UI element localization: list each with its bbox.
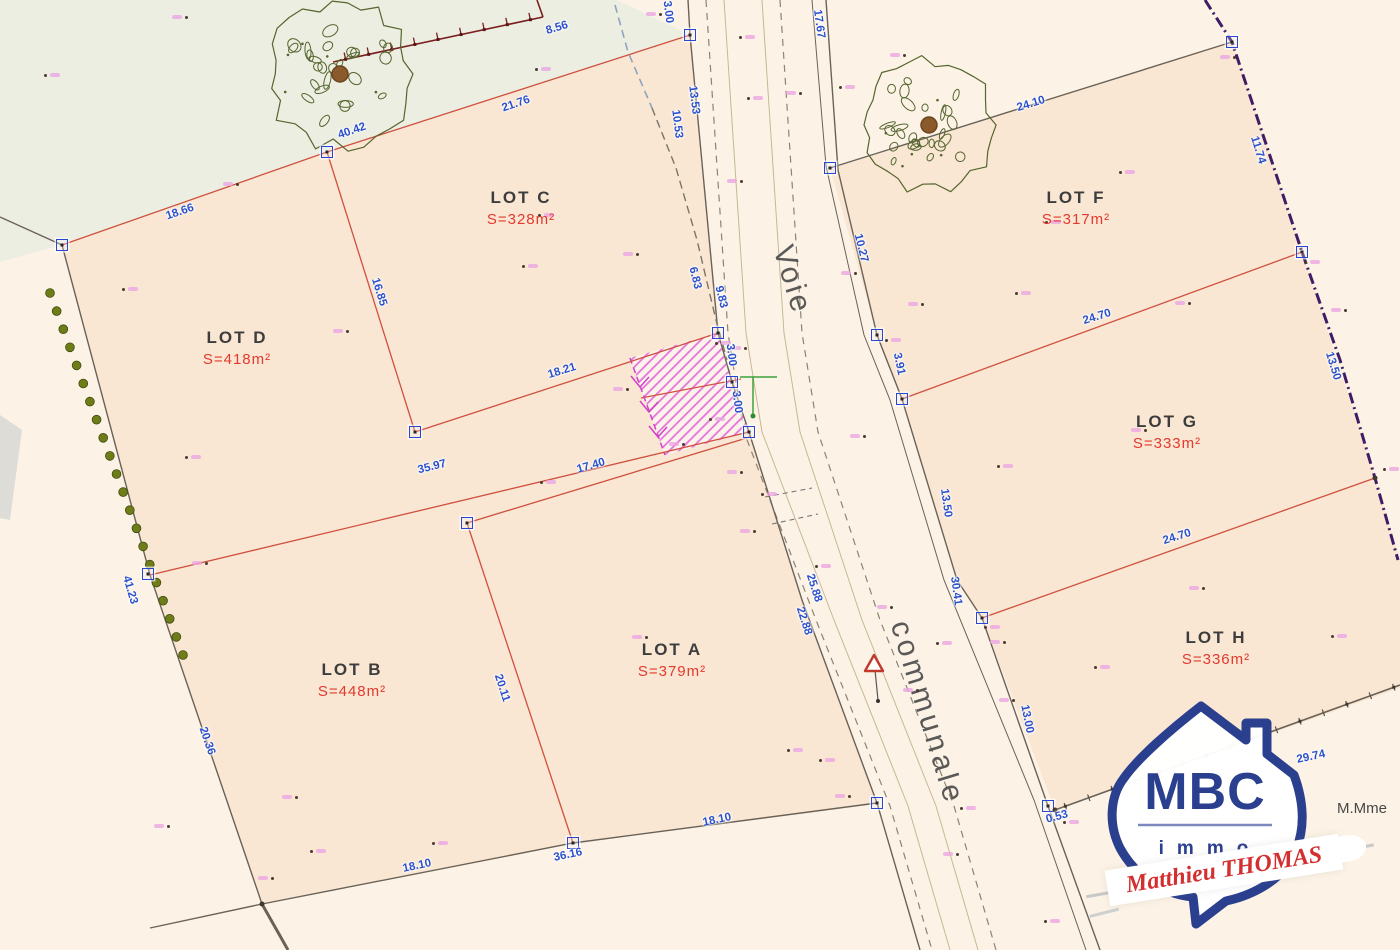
mbc-immo-logo: MBC immo [1098, 692, 1310, 950]
owner-label: M.Mme [1337, 800, 1387, 817]
logo-brand-text: MBC [1144, 763, 1265, 821]
cadastral-site-plan: Voie communale M.Mme LOT AS=379m²LOT BS=… [0, 0, 1400, 950]
